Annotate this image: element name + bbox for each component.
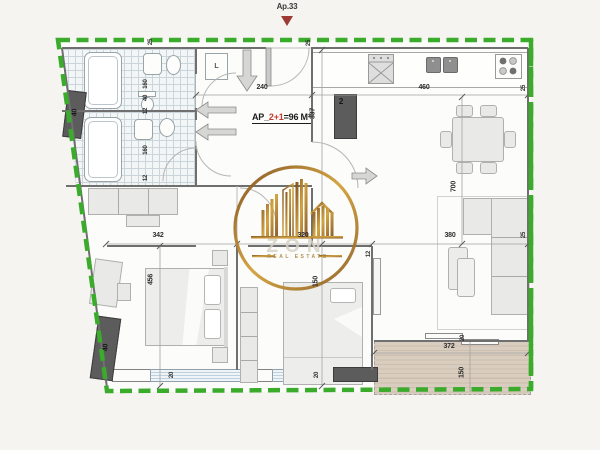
dim-wall-top-left: 25: [148, 31, 154, 53]
dim-terrace-depth: 150: [459, 362, 466, 384]
watermark: [235, 167, 357, 289]
appliance-detail: [368, 57, 516, 83]
dim-bath2-12: 12: [143, 167, 149, 189]
watermark-tagline: REAL ESTATE: [258, 254, 338, 260]
dim-balcony-door: 20: [460, 327, 466, 349]
column-label-top-left: 40: [72, 102, 79, 124]
dim-wall-right-top: 25: [521, 77, 527, 99]
door-arcs: [163, 48, 358, 224]
area-rooms: 2+1: [269, 112, 284, 122]
dim-bed1-width: 342: [144, 232, 172, 239]
area-value: =96 M²: [284, 112, 311, 122]
watermark-logo-icon: [263, 179, 333, 236]
floor-plan-canvas: L: [0, 0, 600, 450]
entry-door-leaf: [266, 48, 271, 86]
unit-label: Ap.33: [267, 2, 307, 11]
dim-living-width: 380: [436, 232, 464, 239]
dim-window1: 20: [169, 364, 175, 386]
dim-window2: 20: [314, 364, 320, 386]
plan-linework: [0, 0, 600, 450]
dim-bed2-depth: 150: [313, 271, 320, 293]
dim-bed2-width: 320: [289, 232, 317, 239]
living-arrow-icon: [352, 168, 377, 184]
dim-bath2-160: 160: [143, 139, 149, 161]
area-prefix: AP_: [252, 112, 269, 122]
unit-marker-icon: [281, 16, 293, 26]
dim-bed2-wall: 12: [366, 243, 372, 265]
bathroom2-arrow-icon: [196, 124, 236, 140]
dim-bath1-12: 12: [143, 100, 149, 122]
dim-kitchen-width: 460: [410, 84, 438, 91]
column-label-bottom-left: 40: [103, 337, 110, 359]
apartment-area-label: AP_2+1=96 M²: [252, 112, 311, 124]
dim-wall-entry: 25: [306, 32, 312, 54]
dim-living-depth: 700: [451, 176, 458, 198]
dim-hall-width: 240: [248, 84, 276, 91]
dim-bed1-depth: 456: [148, 269, 155, 291]
dim-terrace-width: 372: [435, 343, 463, 350]
dim-wall-right-mid: 25: [521, 224, 527, 246]
dim-hall-depth: 337: [310, 103, 317, 125]
column-label-kitchen: 2: [336, 97, 346, 106]
